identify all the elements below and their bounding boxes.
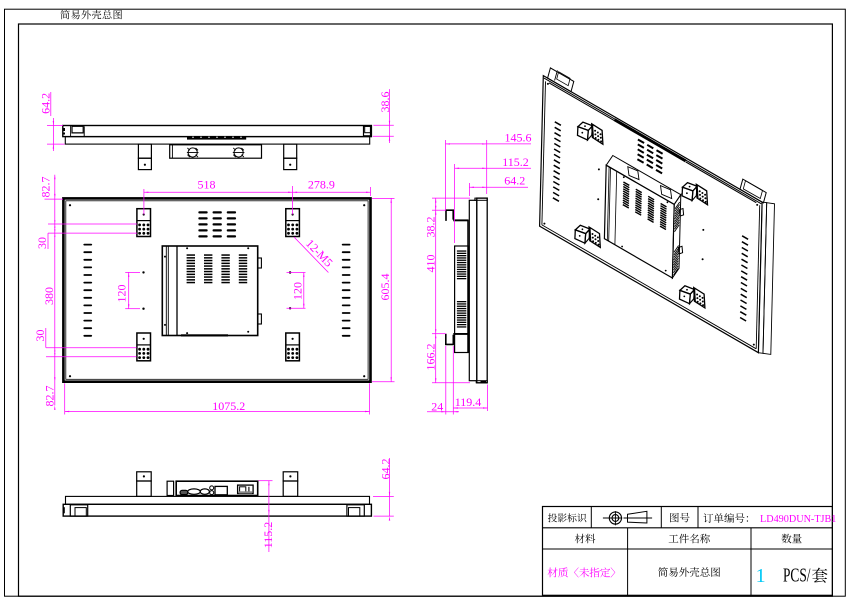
- svg-text:工件名称: 工件名称: [668, 532, 710, 547]
- svg-text:64.2: 64.2: [504, 174, 525, 188]
- svg-text:82.7: 82.7: [38, 177, 52, 198]
- svg-text:投影标识: 投影标识: [548, 511, 587, 525]
- svg-text:145.6: 145.6: [505, 131, 532, 145]
- svg-text:1075.2: 1075.2: [212, 399, 245, 413]
- svg-text:材质〈未指定〉: 材质〈未指定〉: [547, 566, 620, 581]
- svg-text:套: 套: [812, 563, 829, 587]
- svg-text:64.2: 64.2: [378, 459, 392, 480]
- svg-text:38.6: 38.6: [378, 92, 392, 113]
- svg-text:LD490DUN-TJB1: LD490DUN-TJB1: [760, 514, 836, 525]
- svg-text:120: 120: [290, 282, 304, 300]
- svg-text:410: 410: [423, 255, 437, 273]
- svg-text:518: 518: [198, 177, 216, 191]
- svg-text:278.9: 278.9: [308, 177, 335, 191]
- svg-text:166.2: 166.2: [423, 344, 437, 371]
- svg-text:材料: 材料: [575, 532, 596, 547]
- svg-text:115.2: 115.2: [261, 522, 275, 549]
- svg-text:24: 24: [431, 400, 443, 414]
- svg-text:38.2: 38.2: [423, 217, 437, 238]
- svg-text:数量: 数量: [781, 532, 802, 547]
- svg-text:订单编号：: 订单编号：: [703, 511, 756, 526]
- svg-text:380: 380: [42, 287, 56, 305]
- svg-text:120: 120: [115, 285, 129, 303]
- svg-text:简易外壳总图: 简易外壳总图: [658, 565, 721, 580]
- svg-text:30: 30: [35, 237, 49, 249]
- svg-text:简易外壳总图: 简易外壳总图: [60, 7, 123, 22]
- svg-text:图号: 图号: [669, 511, 690, 526]
- svg-text:30: 30: [33, 330, 47, 342]
- svg-text:605.4: 605.4: [378, 274, 392, 301]
- svg-text:1: 1: [756, 565, 766, 587]
- svg-text:119.4: 119.4: [455, 395, 482, 409]
- svg-text:PCS/: PCS/: [783, 565, 811, 587]
- svg-text:64.2: 64.2: [38, 93, 52, 114]
- svg-text:115.2: 115.2: [502, 155, 529, 169]
- svg-text:82.7: 82.7: [43, 386, 57, 407]
